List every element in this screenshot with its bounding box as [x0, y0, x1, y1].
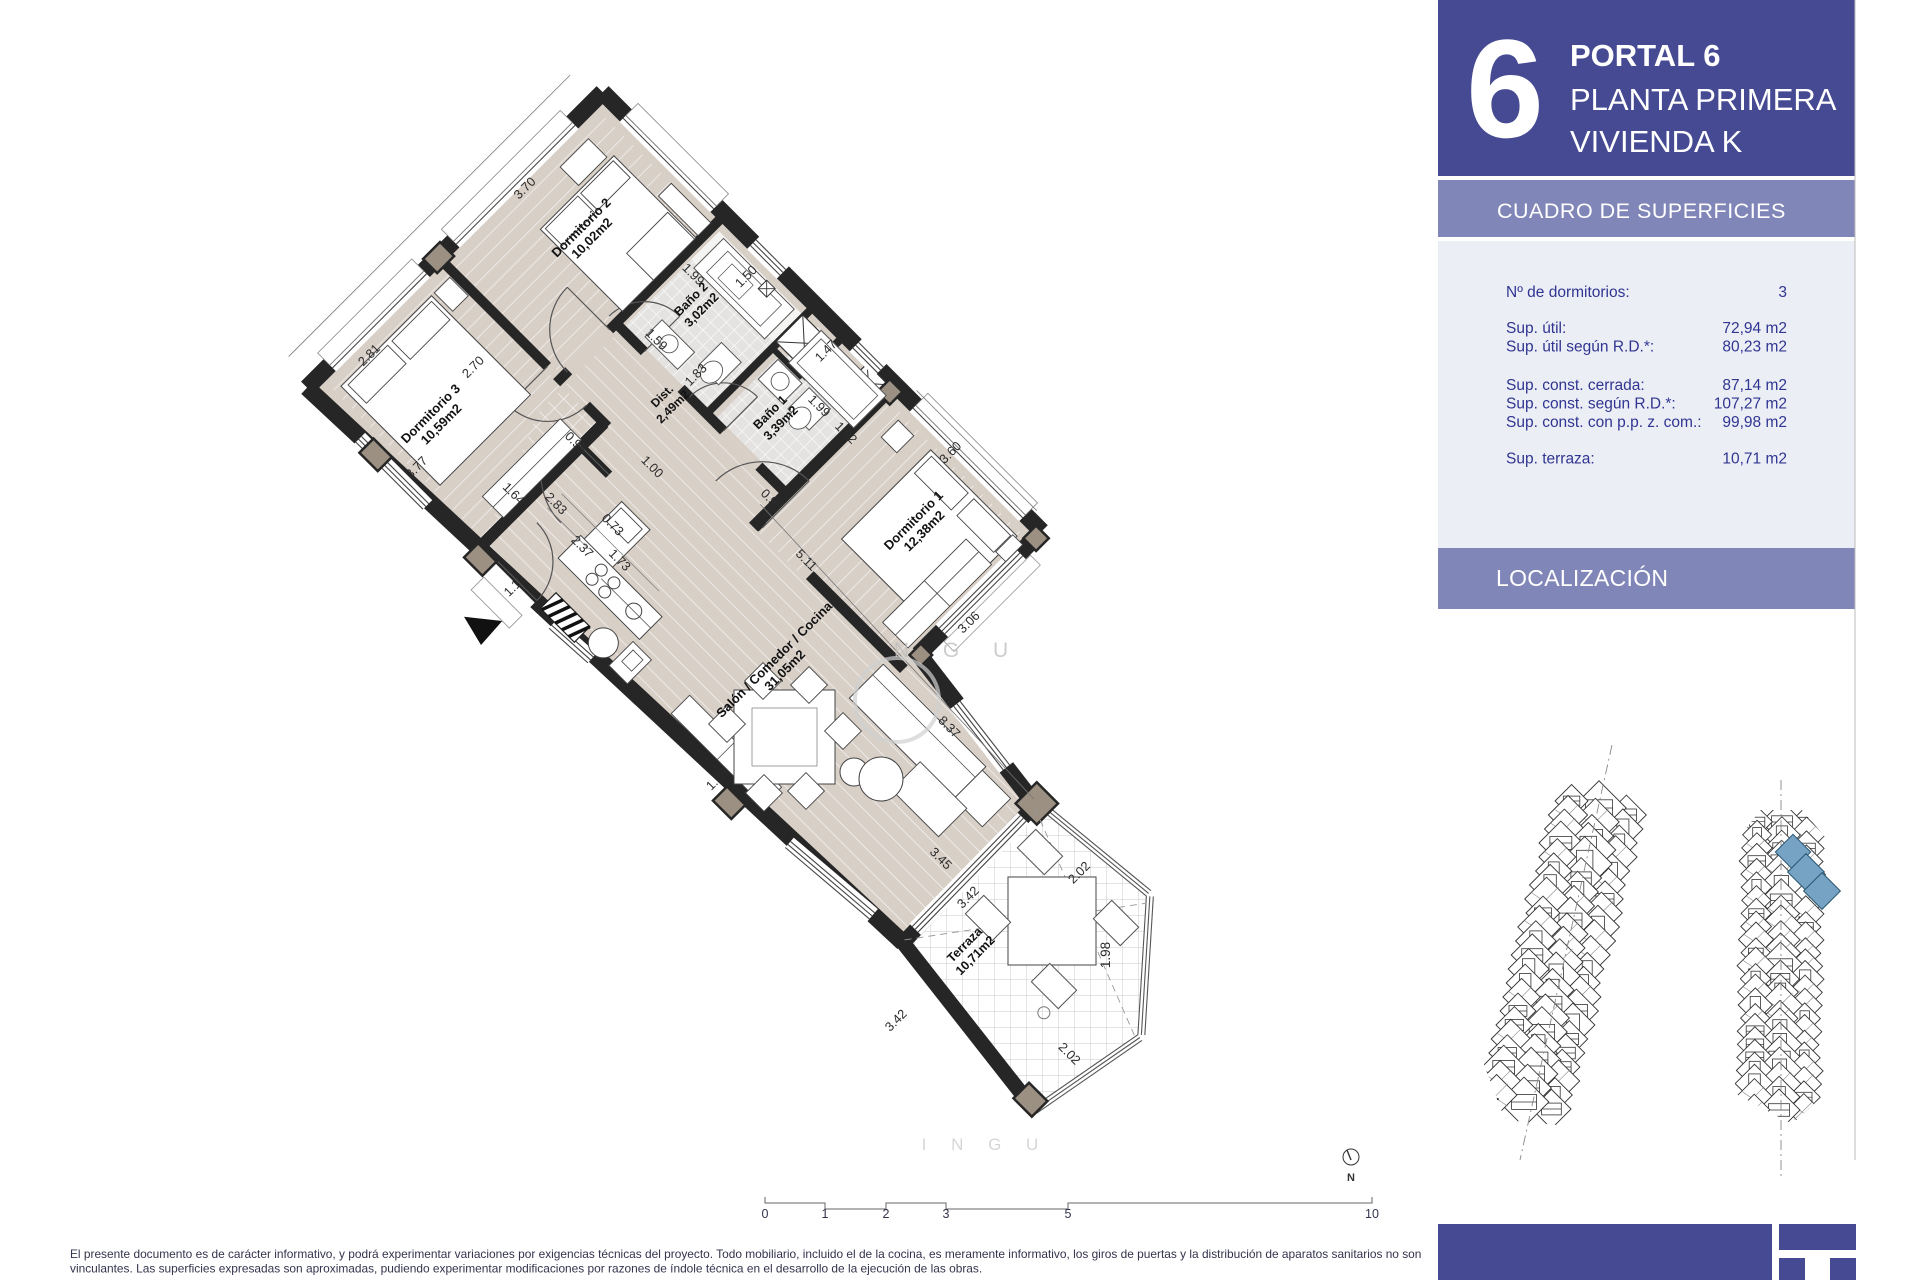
svg-text:Sup. útil:: Sup. útil:: [1506, 320, 1566, 337]
svg-text:2: 2: [883, 1207, 890, 1221]
svg-text:vinculantes. Las superficies e: vinculantes. Las superficies expresadas …: [70, 1262, 982, 1276]
svg-text:LOCALIZACIÓN: LOCALIZACIÓN: [1496, 565, 1668, 591]
svg-text:3: 3: [1778, 284, 1787, 301]
svg-text:5: 5: [1065, 1207, 1072, 1221]
svg-text:0: 0: [762, 1207, 769, 1221]
svg-text:10,71 m2: 10,71 m2: [1722, 451, 1787, 468]
svg-text:Nº de dormitorios:: Nº de dormitorios:: [1506, 284, 1630, 301]
svg-text:CUADRO DE SUPERFICIES: CUADRO DE SUPERFICIES: [1497, 199, 1786, 223]
svg-text:72,94 m2: 72,94 m2: [1722, 320, 1787, 337]
svg-text:107,27 m2: 107,27 m2: [1714, 396, 1787, 413]
svg-text:Sup. terraza:: Sup. terraza:: [1506, 451, 1595, 468]
svg-text:99,98 m2: 99,98 m2: [1722, 414, 1787, 431]
svg-text:87,14 m2: 87,14 m2: [1722, 377, 1787, 394]
svg-text:PORTAL 6: PORTAL 6: [1570, 38, 1720, 73]
svg-text:VIVIENDA K: VIVIENDA K: [1570, 124, 1743, 159]
svg-text:Sup. const. cerrada:: Sup. const. cerrada:: [1506, 377, 1645, 394]
svg-text:Sup. const. según R.D.*:: Sup. const. según R.D.*:: [1506, 396, 1676, 413]
svg-text:El presente documento es de ca: El presente documento es de carácter inf…: [70, 1247, 1421, 1261]
svg-text:Sup. const. con p.p. z. com.:: Sup. const. con p.p. z. com.:: [1506, 414, 1702, 431]
svg-text:3: 3: [943, 1207, 950, 1221]
svg-text:10: 10: [1365, 1207, 1379, 1221]
svg-text:Sup. útil según R.D.*:: Sup. útil según R.D.*:: [1506, 339, 1654, 356]
svg-text:N G U: N G U: [894, 639, 1022, 662]
svg-text:1: 1: [822, 1207, 829, 1221]
svg-text:80,23 m2: 80,23 m2: [1722, 339, 1787, 356]
svg-text:1.98: 1.98: [1098, 942, 1113, 968]
svg-text:N: N: [1347, 1172, 1355, 1184]
svg-text:6: 6: [1466, 10, 1544, 167]
svg-text:PLANTA PRIMERA: PLANTA PRIMERA: [1570, 82, 1837, 117]
svg-text:I N G U: I N G U: [922, 1135, 1049, 1154]
